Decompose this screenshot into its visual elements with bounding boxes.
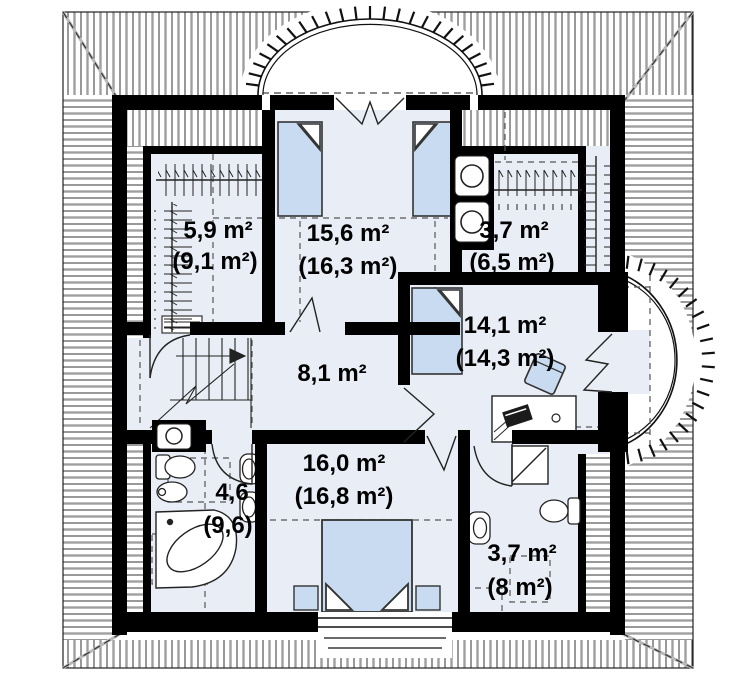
floor-plan-drawing: 5,9 m² (9,1 m²) 15,6 m² (16,3 m²) 3,7 m²… — [0, 0, 736, 684]
cistern-icon — [152, 420, 206, 452]
label-wardrobe-right-total: (6,5 m²) — [469, 249, 554, 276]
label-room-right-total: (14,3 m²) — [456, 345, 555, 372]
label-wardrobe-right-area: 3,7 m² — [479, 217, 548, 244]
label-bathroom-left-total: (9,6) — [203, 512, 252, 539]
floor-plan: 5,9 m² (9,1 m²) 15,6 m² (16,3 m²) 3,7 m²… — [0, 0, 736, 684]
single-bed-left — [278, 122, 322, 216]
label-bathroom-left-area: 4,6 — [215, 479, 248, 506]
toilet-icon-left-bath — [156, 455, 195, 479]
label-bedroom-top-total: (16,3 m²) — [299, 253, 398, 280]
label-hall-area: 8,1 m² — [297, 360, 366, 387]
label-bedroom-top-area: 15,6 m² — [307, 220, 390, 247]
eave-band-left — [63, 95, 112, 640]
label-bathroom-right-total: (8 m²) — [487, 574, 552, 601]
label-room-right-area: 14,1 m² — [464, 312, 547, 339]
toilet-icon-right-bath — [540, 498, 580, 524]
double-bed — [322, 520, 412, 612]
label-bedroom-bottom-total: (16,8 m²) — [295, 483, 394, 510]
nightstand-left — [294, 586, 318, 610]
label-bedroom-bottom-area: 16,0 m² — [303, 450, 386, 477]
label-bathroom-right-area: 3,7 m² — [487, 540, 556, 567]
window-bottom — [318, 612, 452, 658]
label-wardrobe-left-total: (9,1 m²) — [172, 248, 257, 275]
nightstand-right — [416, 586, 440, 610]
bidet-icon — [157, 482, 187, 502]
label-wardrobe-left-area: 5,9 m² — [183, 217, 252, 244]
shower-icon — [512, 446, 548, 484]
